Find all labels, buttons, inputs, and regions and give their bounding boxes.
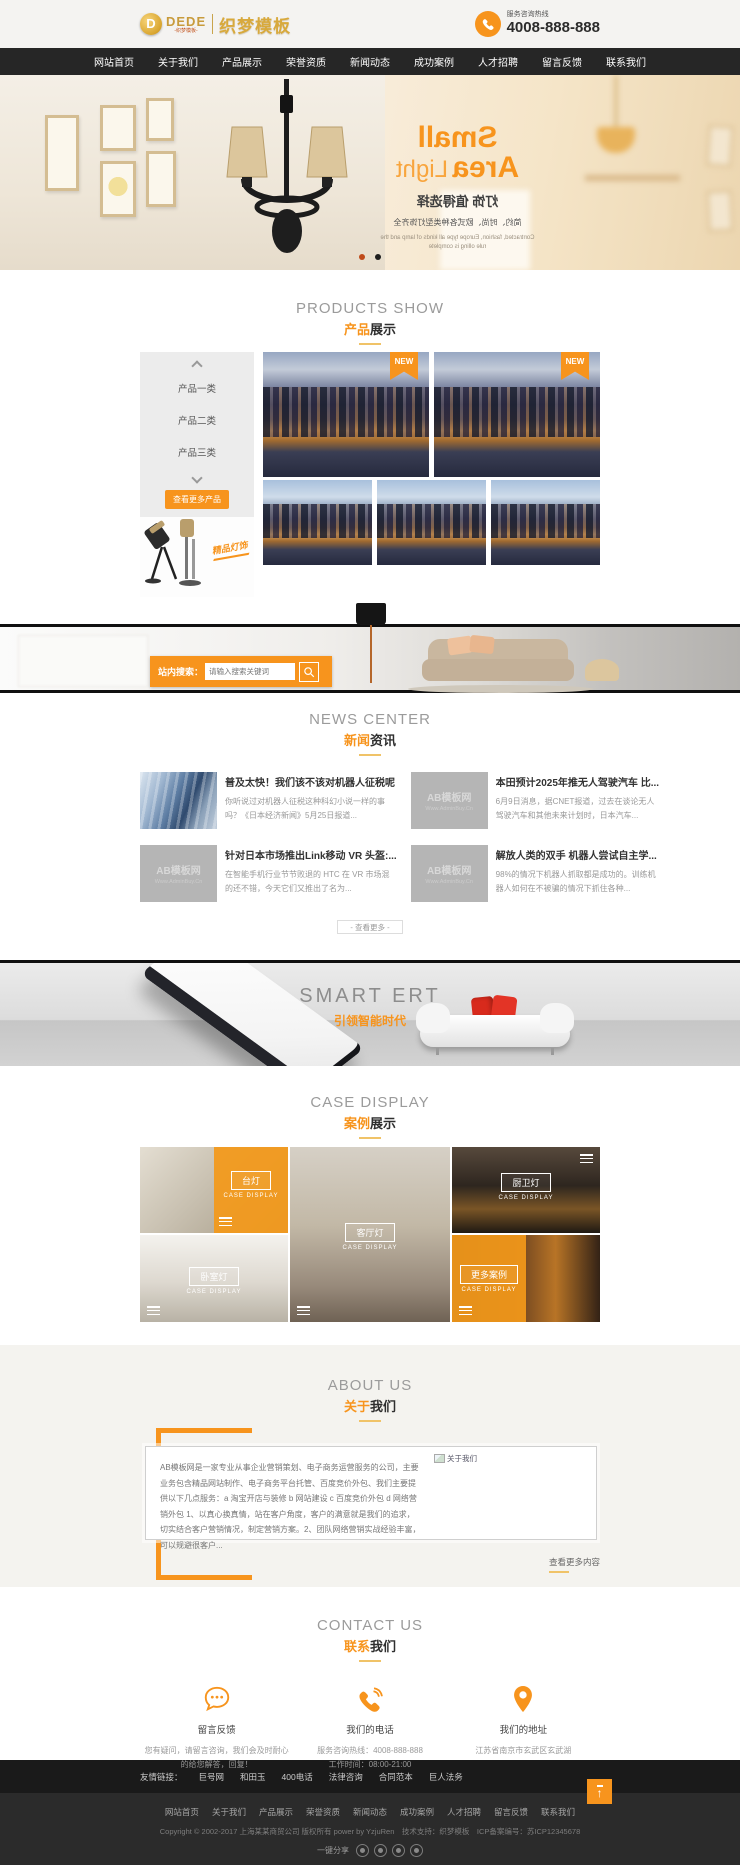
friend-links-label: 友情链接： [140,1771,183,1783]
news-item-body: 6月9日消息，据CNET报道，过去在谈论无人驾驶汽车和其他未来计划时，日本汽车.… [496,795,659,824]
friend-link[interactable]: 巨人法务 [429,1771,463,1783]
contact-title-zh-accent: 联系 [344,1639,370,1654]
title-underline [359,343,381,345]
products-title-en: PRODUCTS SHOW [0,300,740,317]
contact-card-line: 您有疑问，请留言咨询，我们会及时耐心 [140,1744,293,1758]
footer: ↑ 网站首页 关于我们 产品展示 荣誉资质 新闻动态 成功案例 人才招聘 留言反… [0,1793,740,1865]
carousel-dot-1[interactable] [359,254,365,260]
footer-nav: 网站首页 关于我们 产品展示 荣誉资质 新闻动态 成功案例 人才招聘 留言反馈 … [0,1793,740,1818]
title-underline [359,1420,381,1422]
news-item[interactable]: AB模板网 Www.AdminBuy.Cn 解放人类的双手 机器人尝试自主学..… [411,845,659,902]
hero-description: 简约、时尚、欧式各种类型灯饰齐全 [355,217,560,228]
share-bar: 一键分享 [0,1844,740,1857]
news-title-zh: 资讯 [370,733,396,748]
room-decor [18,635,148,687]
placeholder-brand: AB模板网 [427,862,471,877]
smart-banner-title: SMART ERT [0,985,740,1008]
picture-frame [100,161,136,217]
footer-nav-home[interactable]: 网站首页 [165,1806,199,1818]
wall-lamp-image [222,79,352,269]
magnifier-icon [303,666,315,678]
friend-link[interactable]: 法律咨询 [329,1771,363,1783]
about-title: ABOUT US 关于我们 [0,1377,740,1422]
case-title-zh: 展示 [370,1116,396,1131]
footer-nav-cases[interactable]: 成功案例 [400,1806,434,1818]
top-header: D DEDE -织梦模板- 织梦模板 服务咨询热线 4008-888-888 [0,0,740,48]
footer-nav-jobs[interactable]: 人才招聘 [447,1806,481,1818]
news-title-zh-accent: 新闻 [344,733,370,748]
case-label: 台灯 [231,1171,271,1190]
menu-icon[interactable] [459,1306,472,1315]
case-sublabel: CASE DISPLAY [140,1289,288,1295]
product-image[interactable] [263,480,372,565]
nav-item-news[interactable]: 新闻动态 [350,54,390,69]
product-category-sidebar: 产品一类 产品二类 产品三类 查看更多产品 [140,352,254,597]
picture-frame [45,115,79,191]
nav-item-cases[interactable]: 成功案例 [414,54,454,69]
white-sofa-image [420,1001,570,1051]
news-item[interactable]: AB模板网 Www.AdminBuy.Cn 本田预计2025年推无人驾驶汽车 比… [411,772,659,829]
picture-frame [706,189,734,232]
hero-title-line2-bold: Area [452,151,519,184]
site-search-box: 站内搜索： [150,656,332,687]
copyright-text: Copyright © 2002-2017 上海某某商贸公司 版权所有 powe… [0,1826,740,1837]
contact-section: CONTACT US 联系我们 留言反馈 您有疑问，请留言咨询，我们会及时耐心 … [0,1587,740,1760]
share-label: 一键分享 [317,1845,349,1856]
friend-links-bar: 友情链接： 巨号网 和田玉 400电话 法律咨询 合同范本 巨人法务 [0,1760,740,1793]
broken-image-placeholder: 关于我们 [434,1453,477,1464]
friend-link[interactable]: 巨号网 [199,1771,225,1783]
share-wechat-icon[interactable] [410,1844,423,1857]
footer-nav-news[interactable]: 新闻动态 [353,1806,387,1818]
about-content-box: AB模板网是一家专业从事企业营销策划、电子商务运营服务的公司，主要业务包含精品网… [145,1446,597,1540]
picture-frame [146,151,176,207]
case-label: 客厅灯 [345,1223,394,1242]
share-qq-icon[interactable] [374,1844,387,1857]
products-title-zh-accent: 产品 [344,322,370,337]
logo-divider [212,14,213,34]
nav-item-contact[interactable]: 联系我们 [606,54,646,69]
hotline: 服务咨询热线 4008-888-888 [475,11,600,37]
hotline-number: 4008-888-888 [507,19,600,36]
news-title: NEWS CENTER 新闻资讯 [0,711,740,756]
hero-text-block: Small Area Light 灯饰 值得选择 简约、时尚、欧式各种类型灯饰齐… [355,123,560,252]
footer-nav-contact[interactable]: 联系我们 [541,1806,575,1818]
placeholder-brand: AB模板网 [427,789,471,804]
more-products-button[interactable]: 查看更多产品 [165,490,229,509]
news-item-body: 98%的情况下机器人抓取都是成功的。训练机器人如何在不被骗的情况下抓住各种... [496,868,659,897]
news-thumbnail-placeholder: AB模板网 Www.AdminBuy.Cn [411,772,488,829]
smart-banner: SMART ERT 引领智能时代 [0,960,740,1066]
side-table [585,659,619,681]
case-label: 更多案例 [460,1265,518,1284]
site-search-banner: 站内搜索： [0,624,740,693]
case-grid: 台灯 CASE DISPLAY 卧室灯 CASE DISPLAY 客厅灯 CAS… [140,1147,600,1322]
product-image[interactable] [377,480,486,565]
about-more-link[interactable]: 查看更多内容 [549,1556,600,1573]
news-thumbnail-placeholder: AB模板网 Www.AdminBuy.Cn [140,845,217,902]
case-tile-kitchen-lamp[interactable]: 厨卫灯 CASE DISPLAY [452,1147,600,1233]
nav-item-home[interactable]: 网站首页 [94,54,134,69]
search-button[interactable] [299,662,319,682]
case-sublabel: CASE DISPLAY [452,1287,526,1293]
product-image[interactable]: NEW [263,352,429,477]
carousel-dot-2[interactable] [375,254,381,260]
about-title-zh: 我们 [370,1399,396,1414]
chevron-down-icon[interactable] [191,472,202,483]
contact-card-title: 我们的地址 [447,1722,600,1736]
product-image[interactable]: NEW [434,352,600,477]
about-section: ABOUT US 关于我们 AB模板网是一家专业从事企业营销策划、电子商务运营服… [0,1345,740,1587]
quality-badge: 精品灯饰 [211,538,249,561]
rug [408,685,593,693]
footer-nav-feedback[interactable]: 留言反馈 [494,1806,528,1818]
hotline-label: 服务咨询热线 [507,11,600,19]
case-label: 卧室灯 [189,1267,238,1286]
menu-icon[interactable] [297,1306,310,1315]
product-category-1[interactable]: 产品一类 [178,372,216,404]
picture-frame [146,98,174,141]
news-item-title[interactable]: 解放人类的双手 机器人尝试自主学... [496,847,659,862]
title-underline [359,1137,381,1139]
logo-brand-sub: -织梦模板- [166,29,206,34]
placeholder-brand: AB模板网 [156,862,200,877]
hero-title-line2-light: Light [396,156,448,183]
phone-icon [475,11,501,37]
nav-item-products[interactable]: 产品展示 [222,54,262,69]
picture-frame [706,124,735,168]
carousel-dots [0,247,740,265]
news-more-button[interactable]: - 查看更多 - [337,920,403,934]
site-logo[interactable]: D DEDE -织梦模板- 织梦模板 [140,12,291,37]
lamp-illustration: 精品灯饰 [140,517,254,597]
share-weibo-icon[interactable] [356,1844,369,1857]
case-tile-more-cases[interactable]: 更多案例 CASE DISPLAY [452,1235,600,1322]
picture-frame [100,105,136,151]
case-title-zh-accent: 案例 [344,1116,370,1131]
menu-icon[interactable] [147,1306,160,1315]
contact-title: CONTACT US 联系我们 [0,1617,740,1662]
case-section: CASE DISPLAY 案例展示 台灯 CASE DISPLAY 卧室灯 CA… [0,1066,740,1345]
sofa-pillow [469,635,495,654]
about-title-en: ABOUT US [0,1377,740,1394]
placeholder-url: Www.AdminBuy.Cn [425,879,473,885]
hero-banner[interactable]: Small Area Light 灯饰 值得选择 简约、时尚、欧式各种类型灯饰齐… [0,75,740,270]
new-badge: NEW [390,352,418,380]
menu-icon[interactable] [219,1217,232,1226]
news-item-title[interactable]: 针对日本市场推出Link移动 VR 头盔:... [225,847,397,862]
pendant-lamp-shade [597,127,635,153]
logo-coin-icon: D [140,13,162,35]
broken-image-label: 关于我们 [447,1453,477,1464]
news-item[interactable]: 普及太快！我们该不该对机器人征税呢 你听说过对机器人征税这种科幻小说一样的事吗？… [140,772,397,829]
case-title: CASE DISPLAY 案例展示 [0,1094,740,1139]
footer-nav-products[interactable]: 产品展示 [259,1806,293,1818]
product-category-3[interactable]: 产品三类 [178,436,216,468]
smart-banner-subtitle: 引领智能时代 [0,1012,740,1029]
nav-item-feedback[interactable]: 留言反馈 [542,54,582,69]
case-tile-livingroom-lamp[interactable]: 客厅灯 CASE DISPLAY [290,1147,450,1322]
back-to-top-button[interactable]: ↑ [587,1779,612,1804]
menu-icon[interactable] [580,1154,593,1163]
products-title-zh: 展示 [370,322,396,337]
sofa-seat [422,659,574,681]
contact-card-line: 江苏省南京市玄武区玄武湖 [447,1744,600,1758]
contact-card-title: 留言反馈 [140,1722,293,1736]
main-nav: 网站首页 关于我们 产品展示 荣誉资质 新闻动态 成功案例 人才招聘 留言反馈 … [0,48,740,75]
news-thumbnail [140,772,217,829]
search-label: 站内搜索： [158,665,203,678]
title-underline [359,754,381,756]
news-item-title[interactable]: 本田预计2025年推无人驾驶汽车 比... [496,774,659,789]
case-tile-desk-lamp[interactable]: 台灯 CASE DISPLAY [140,1147,288,1233]
case-title-en: CASE DISPLAY [0,1094,740,1111]
case-sublabel: CASE DISPLAY [290,1245,450,1251]
placeholder-url: Www.AdminBuy.Cn [155,879,203,885]
contact-title-zh: 我们 [370,1639,396,1654]
title-underline [359,1660,381,1662]
news-item-body: 在智能手机行业节节败退的 HTC 在 VR 市场混的还不错，今天它们又推出了名为… [225,868,397,897]
nav-item-honor[interactable]: 荣誉资质 [286,54,326,69]
logo-brand: DEDE [166,15,206,28]
hero-title-line1: Small [355,123,560,153]
about-title-zh-accent: 关于 [344,1399,370,1414]
news-thumbnail-placeholder: AB模板网 Www.AdminBuy.Cn [411,845,488,902]
placeholder-url: Www.AdminBuy.Cn [425,806,473,812]
nav-item-jobs[interactable]: 人才招聘 [478,54,518,69]
case-tile-bedroom-lamp[interactable]: 卧室灯 CASE DISPLAY [140,1235,288,1322]
floor-lamp-shade [356,603,386,625]
contact-card-title: 我们的电话 [293,1722,446,1736]
friend-link[interactable]: 400电话 [282,1771,313,1783]
share-qzone-icon[interactable] [392,1844,405,1857]
news-item-body: 你听说过对机器人征税这种科幻小说一样的事吗？《日本经济新闻》5月25日报道... [225,795,397,824]
footer-nav-about[interactable]: 关于我们 [212,1806,246,1818]
friend-link[interactable]: 和田玉 [240,1771,266,1783]
search-input[interactable] [205,663,295,680]
case-label: 厨卫灯 [501,1173,550,1192]
contact-title-en: CONTACT US [0,1617,740,1634]
location-pin-icon [447,1682,600,1714]
pendant-lamp [615,75,617,130]
floor-lamp-pole [370,625,372,683]
case-sublabel: CASE DISPLAY [214,1193,288,1199]
products-section: PRODUCTS SHOW 产品展示 产品一类 产品二类 产品三类 查看更多产品 [0,270,740,624]
products-title: PRODUCTS SHOW 产品展示 [0,300,740,345]
news-item[interactable]: AB模板网 Www.AdminBuy.Cn 针对日本市场推出Link移动 VR … [140,845,397,902]
news-title-en: NEWS CENTER [0,711,740,728]
hero-subtitle: 灯饰 值得选择 [355,191,560,210]
phone-icon [293,1682,446,1714]
broken-image-icon [434,1454,445,1463]
friend-link[interactable]: 合同范本 [379,1771,413,1783]
wall-shelf [585,175,680,181]
chevron-up-icon[interactable] [191,360,202,371]
case-sublabel: CASE DISPLAY [452,1195,600,1201]
new-badge: NEW [561,352,589,380]
hero-description-en1: Contracted, fashion, Europe type all kin… [355,234,560,243]
product-category-2[interactable]: 产品二类 [178,404,216,436]
news-item-title[interactable]: 普及太快！我们该不该对机器人征税呢 [225,774,397,789]
about-paragraph: AB模板网是一家专业从事企业营销策划、电子商务运营服务的公司，主要业务包含精品网… [160,1460,422,1554]
nav-item-about[interactable]: 关于我们 [158,54,198,69]
footer-nav-honor[interactable]: 荣誉资质 [306,1806,340,1818]
site-name: 织梦模板 [219,12,291,37]
message-bubble-icon [140,1682,293,1714]
news-section: NEWS CENTER 新闻资讯 普及太快！我们该不该对机器人征税呢 你听说过对… [0,693,740,960]
product-image[interactable] [491,480,600,565]
contact-card-line: 服务咨询热线：4008-888-888 [293,1744,446,1758]
